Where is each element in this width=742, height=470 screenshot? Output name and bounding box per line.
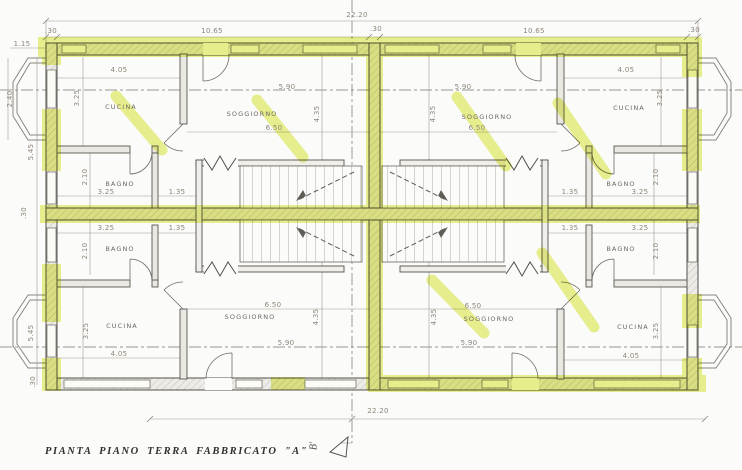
section-arrow-icon — [330, 437, 348, 457]
stair-treads-upper-right — [382, 166, 504, 208]
floor-plan-drawing: CUCINASOGGIORNOSOGGIORNOCUCINABAGNOBAGNO… — [0, 0, 742, 470]
stair-treads-upper-left — [240, 166, 362, 208]
drawing-caption: PIANTA PIANO TERRA FABBRICATO "A" — [45, 446, 308, 457]
section-label: B' — [309, 442, 320, 450]
stair-treads-lower-left — [240, 220, 362, 262]
stair-treads-lower-right — [382, 220, 504, 262]
floor-plan-svg — [0, 0, 742, 470]
section-marker — [330, 437, 352, 457]
